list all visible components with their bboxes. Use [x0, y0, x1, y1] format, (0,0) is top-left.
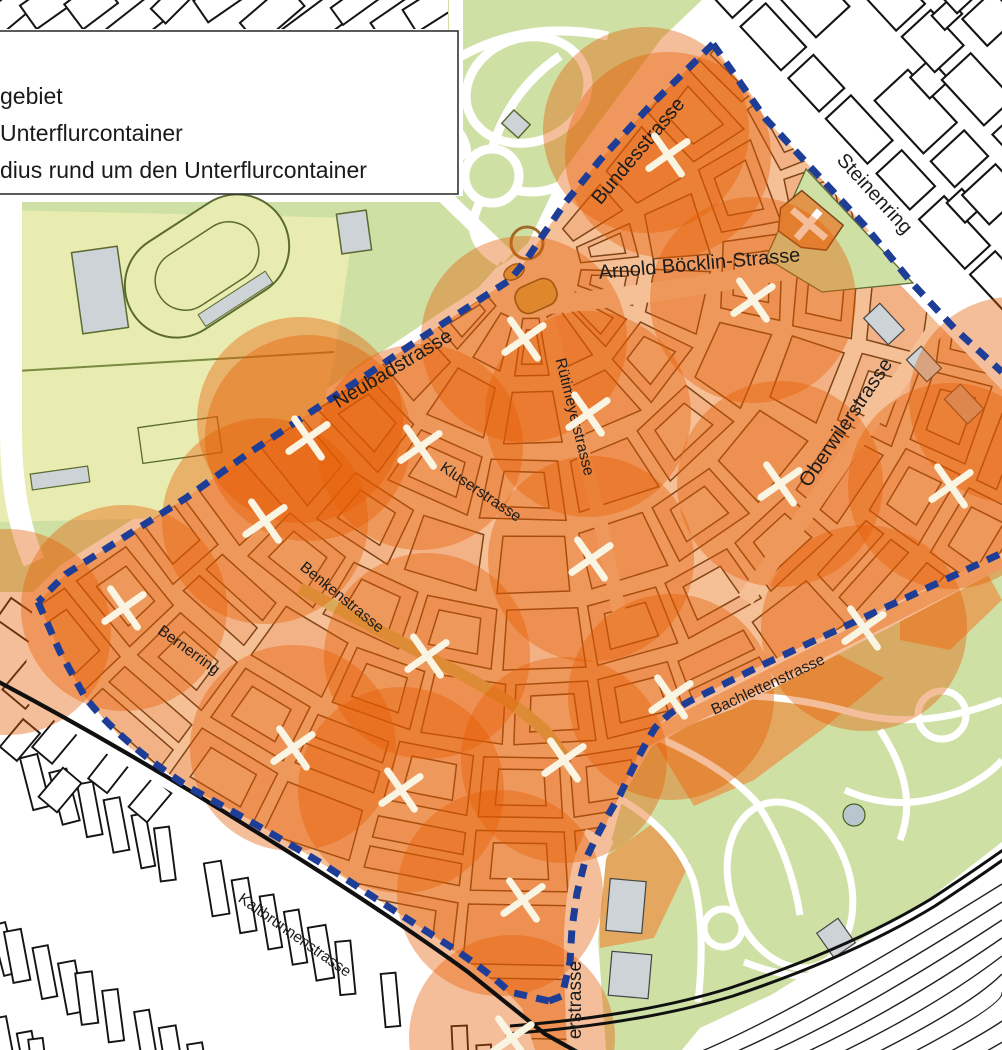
- svg-text:gebiet: gebiet: [0, 83, 63, 109]
- svg-text:erstrasse: erstrasse: [565, 961, 586, 1039]
- svg-text:dius rund um den Unterflurcont: dius rund um den Unterflurcontainer: [0, 157, 367, 183]
- svg-text:Unterflurcontainer: Unterflurcontainer: [0, 120, 183, 146]
